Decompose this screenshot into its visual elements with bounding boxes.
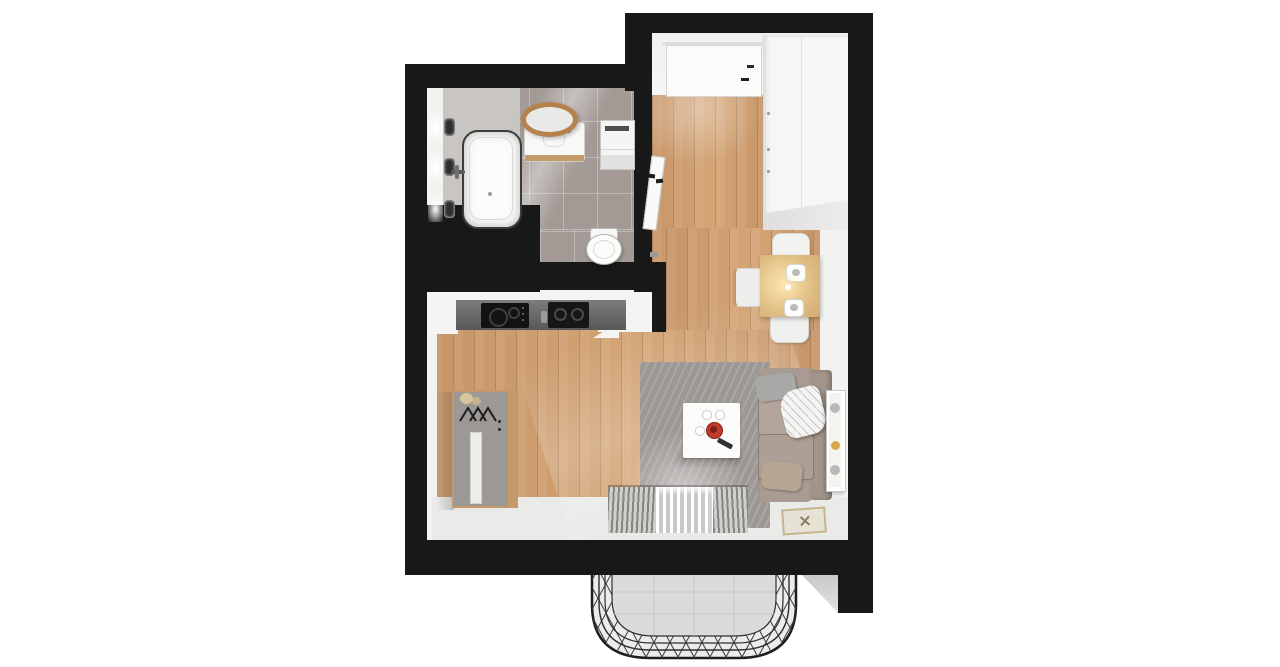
entrance-door — [666, 45, 762, 97]
remote-control — [717, 438, 733, 450]
bathtub — [462, 130, 522, 229]
coat-rack-cabinet — [452, 390, 518, 508]
burner-small — [508, 307, 520, 319]
sconce-glow — [428, 196, 443, 222]
table-lamp — [785, 284, 791, 290]
sconce-glow — [428, 154, 443, 180]
coatrack-knob — [498, 428, 501, 431]
wall-kitchen — [532, 262, 666, 290]
wall-bottom — [405, 540, 873, 575]
wall-poster — [826, 390, 846, 492]
wall-kitchen-stub — [652, 262, 666, 332]
wall-bottom-right-block — [838, 540, 873, 613]
balcony — [588, 568, 800, 664]
washer-seam — [601, 149, 634, 150]
poster-circle-yellow — [831, 441, 840, 450]
wall-hall-top — [625, 13, 873, 33]
wall-sconce-1 — [444, 118, 455, 136]
kitchen-sink — [548, 302, 589, 328]
wardrobe-closet — [763, 35, 848, 218]
cooktop-control — [522, 307, 524, 309]
hangers-icon — [458, 404, 502, 424]
dinner-plate-bottom — [784, 299, 804, 317]
poster-circle-gray-top — [830, 403, 840, 413]
dining-chair-bottom — [770, 315, 809, 343]
cooktop — [481, 303, 529, 328]
cup — [695, 426, 705, 436]
door-lock — [741, 78, 749, 81]
poster-circle-gray-bottom — [830, 465, 840, 475]
mirror-strip — [470, 432, 482, 504]
balcony-wall-shadow — [802, 575, 838, 613]
coffee-table — [683, 403, 740, 458]
cooktop-control — [522, 313, 524, 315]
door-stop — [650, 252, 658, 257]
red-bowl — [706, 422, 723, 439]
burner-large — [489, 308, 508, 327]
toilet-seat — [593, 240, 615, 259]
bathtub-drain — [488, 192, 492, 196]
poster-art — [829, 393, 841, 487]
beige-pillow — [761, 460, 804, 492]
red-bowl-inner — [710, 426, 717, 433]
door-handle — [747, 65, 754, 68]
curtain-sheer — [656, 487, 713, 533]
wardrobe-handle — [767, 112, 770, 115]
washer-lower — [601, 155, 634, 169]
washing-machine — [600, 120, 635, 170]
wall-right — [848, 13, 873, 575]
cup — [702, 410, 712, 420]
dinner-plate-top — [786, 264, 806, 282]
wall-left — [405, 64, 427, 575]
hat-small — [472, 397, 481, 405]
plate-food — [792, 269, 800, 276]
sconce-glow — [428, 114, 443, 140]
coatrack-wood-side — [508, 392, 516, 506]
shoes — [648, 174, 655, 179]
curtain-right — [713, 487, 748, 533]
bathtub-inner-rim — [469, 137, 513, 220]
cup — [715, 410, 725, 420]
dining-table — [760, 255, 820, 317]
wardrobe-seam — [801, 35, 802, 218]
doormat — [781, 506, 827, 535]
wall-sconce-3 — [444, 200, 455, 218]
sink-bowl-right — [571, 308, 584, 321]
coatrack-knob — [498, 420, 501, 423]
hat — [460, 393, 473, 404]
vanity-wood-trim — [525, 155, 584, 161]
wall-bathroom-top — [405, 64, 652, 88]
toilet-bowl — [586, 234, 622, 265]
sink-faucet — [541, 311, 547, 323]
plate-food — [790, 304, 798, 311]
wardrobe-handle — [767, 170, 770, 173]
curtain-left — [608, 487, 656, 533]
floor-plan-render — [0, 0, 1280, 667]
washer-drawer — [605, 126, 629, 131]
sink-bowl-left — [554, 308, 567, 321]
bathtub-faucet-handle — [455, 165, 459, 179]
cooktop-control — [522, 319, 524, 321]
shoes — [656, 179, 663, 184]
round-wood-mirror — [521, 102, 578, 137]
wardrobe-handle — [767, 148, 770, 151]
